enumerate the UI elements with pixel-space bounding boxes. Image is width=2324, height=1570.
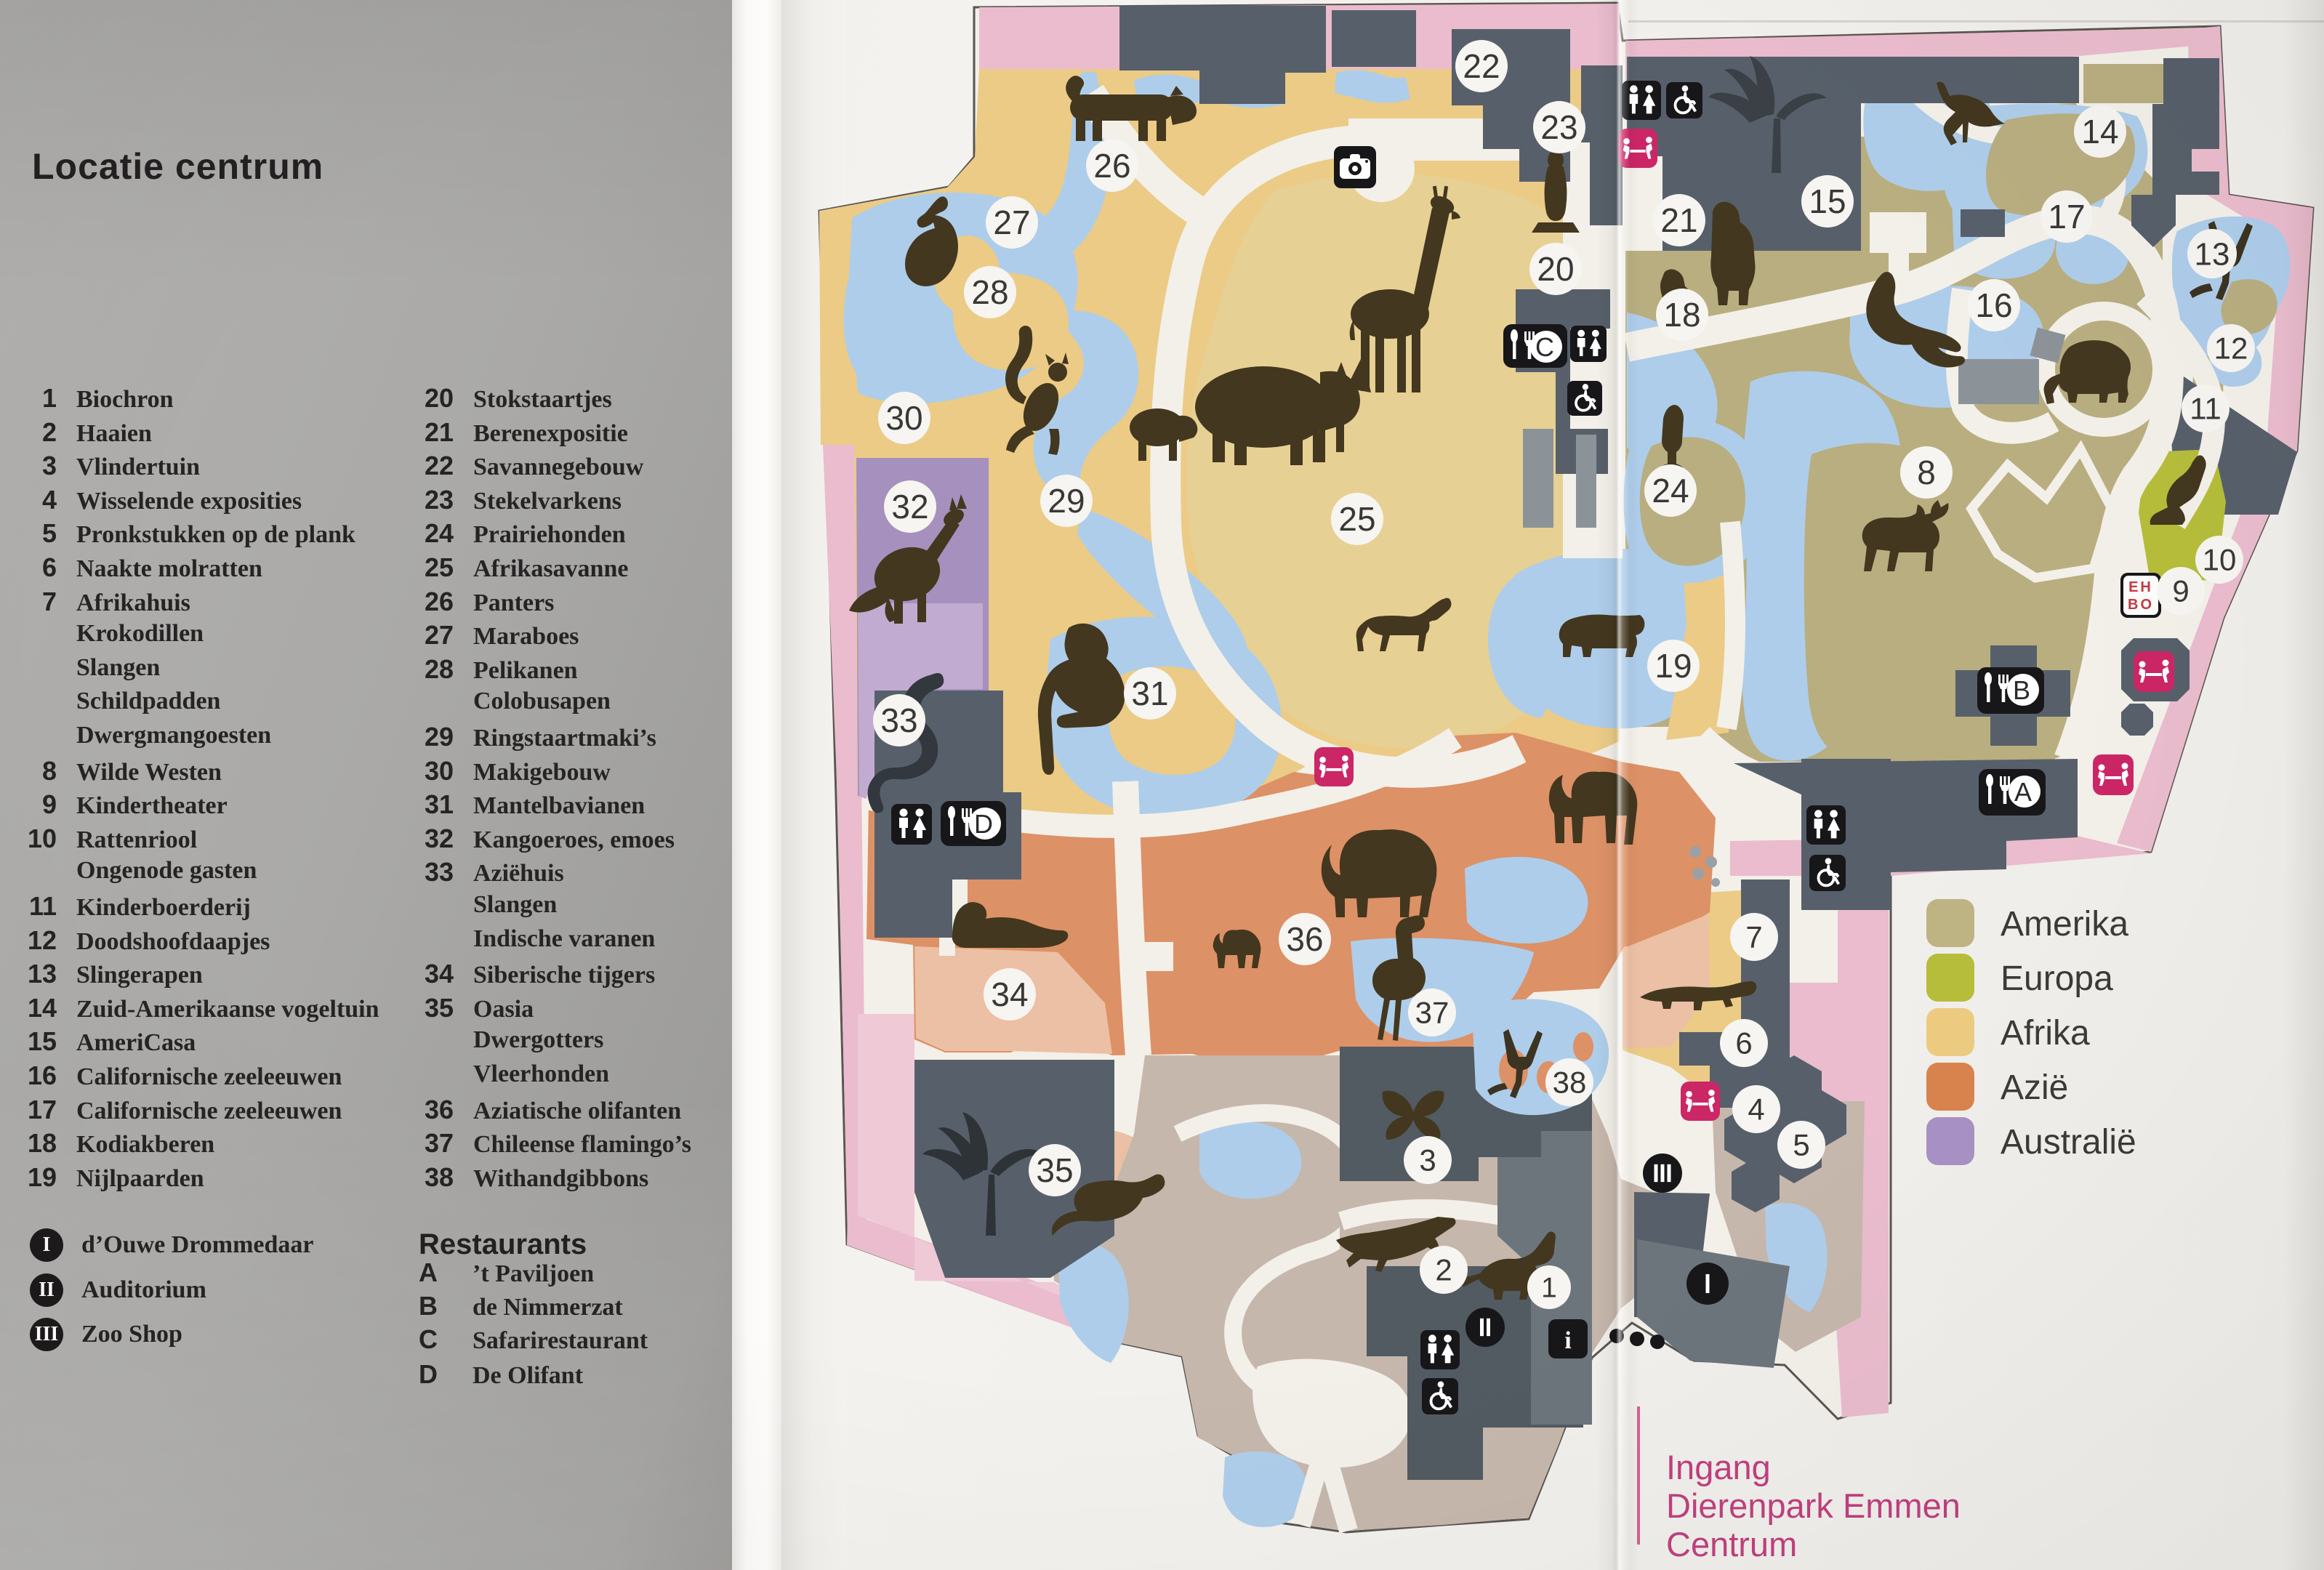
svg-text:37: 37: [1415, 996, 1450, 1030]
svg-text:11: 11: [2190, 392, 2222, 426]
svg-text:4: 4: [1748, 1092, 1764, 1127]
svg-text:1: 1: [1541, 1273, 1557, 1304]
svg-text:26: 26: [1093, 147, 1130, 185]
svg-text:10: 10: [2203, 543, 2237, 577]
svg-text:31: 31: [1131, 675, 1168, 712]
svg-text:27: 27: [993, 204, 1030, 241]
svg-text:38: 38: [1553, 1066, 1587, 1100]
svg-text:8: 8: [1917, 454, 1936, 491]
svg-text:5: 5: [1793, 1128, 1809, 1162]
svg-text:18: 18: [1663, 296, 1700, 334]
svg-text:29: 29: [1048, 482, 1085, 520]
svg-text:25: 25: [1338, 500, 1375, 538]
svg-text:3: 3: [1419, 1143, 1436, 1177]
svg-text:Azië: Azië: [2001, 1068, 2068, 1107]
svg-text:15: 15: [1809, 182, 1846, 220]
svg-text:2: 2: [1435, 1253, 1452, 1287]
svg-text:IngangDierenpark EmmenCentrum: IngangDierenpark EmmenCentrum: [1666, 1448, 1961, 1563]
svg-text:28: 28: [971, 273, 1008, 311]
svg-text:19: 19: [1654, 647, 1692, 685]
svg-text:20: 20: [1537, 250, 1574, 288]
svg-text:B: B: [2013, 675, 2030, 705]
svg-text:BO: BO: [2128, 597, 2154, 613]
svg-text:12: 12: [2214, 331, 2248, 366]
svg-text:33: 33: [880, 701, 917, 739]
svg-text:i: i: [1564, 1327, 1571, 1354]
svg-text:7: 7: [1745, 920, 1762, 954]
svg-text:6: 6: [1735, 1026, 1752, 1060]
svg-text:17: 17: [2048, 198, 2085, 235]
svg-text:EH: EH: [2128, 579, 2153, 595]
svg-text:9: 9: [2172, 574, 2189, 608]
svg-text:13: 13: [2195, 236, 2230, 272]
svg-text:Australië: Australië: [2001, 1123, 2136, 1162]
svg-text:24: 24: [1652, 472, 1689, 510]
svg-text:21: 21: [1660, 201, 1697, 239]
svg-text:Amerika: Amerika: [2001, 905, 2128, 943]
svg-text:23: 23: [1540, 108, 1577, 146]
svg-text:A: A: [2014, 777, 2032, 807]
svg-text:22: 22: [1463, 47, 1500, 85]
svg-text:Afrika: Afrika: [2001, 1014, 2090, 1052]
svg-text:14: 14: [2081, 113, 2118, 150]
svg-text:32: 32: [891, 488, 928, 526]
svg-text:34: 34: [991, 975, 1028, 1013]
svg-text:Europa: Europa: [2001, 959, 2113, 998]
svg-text:16: 16: [1975, 286, 2012, 324]
svg-text:35: 35: [1036, 1151, 1073, 1189]
svg-text:36: 36: [1286, 920, 1323, 958]
svg-text:30: 30: [885, 399, 922, 437]
svg-text:D: D: [974, 809, 993, 839]
svg-text:C: C: [1535, 332, 1554, 362]
